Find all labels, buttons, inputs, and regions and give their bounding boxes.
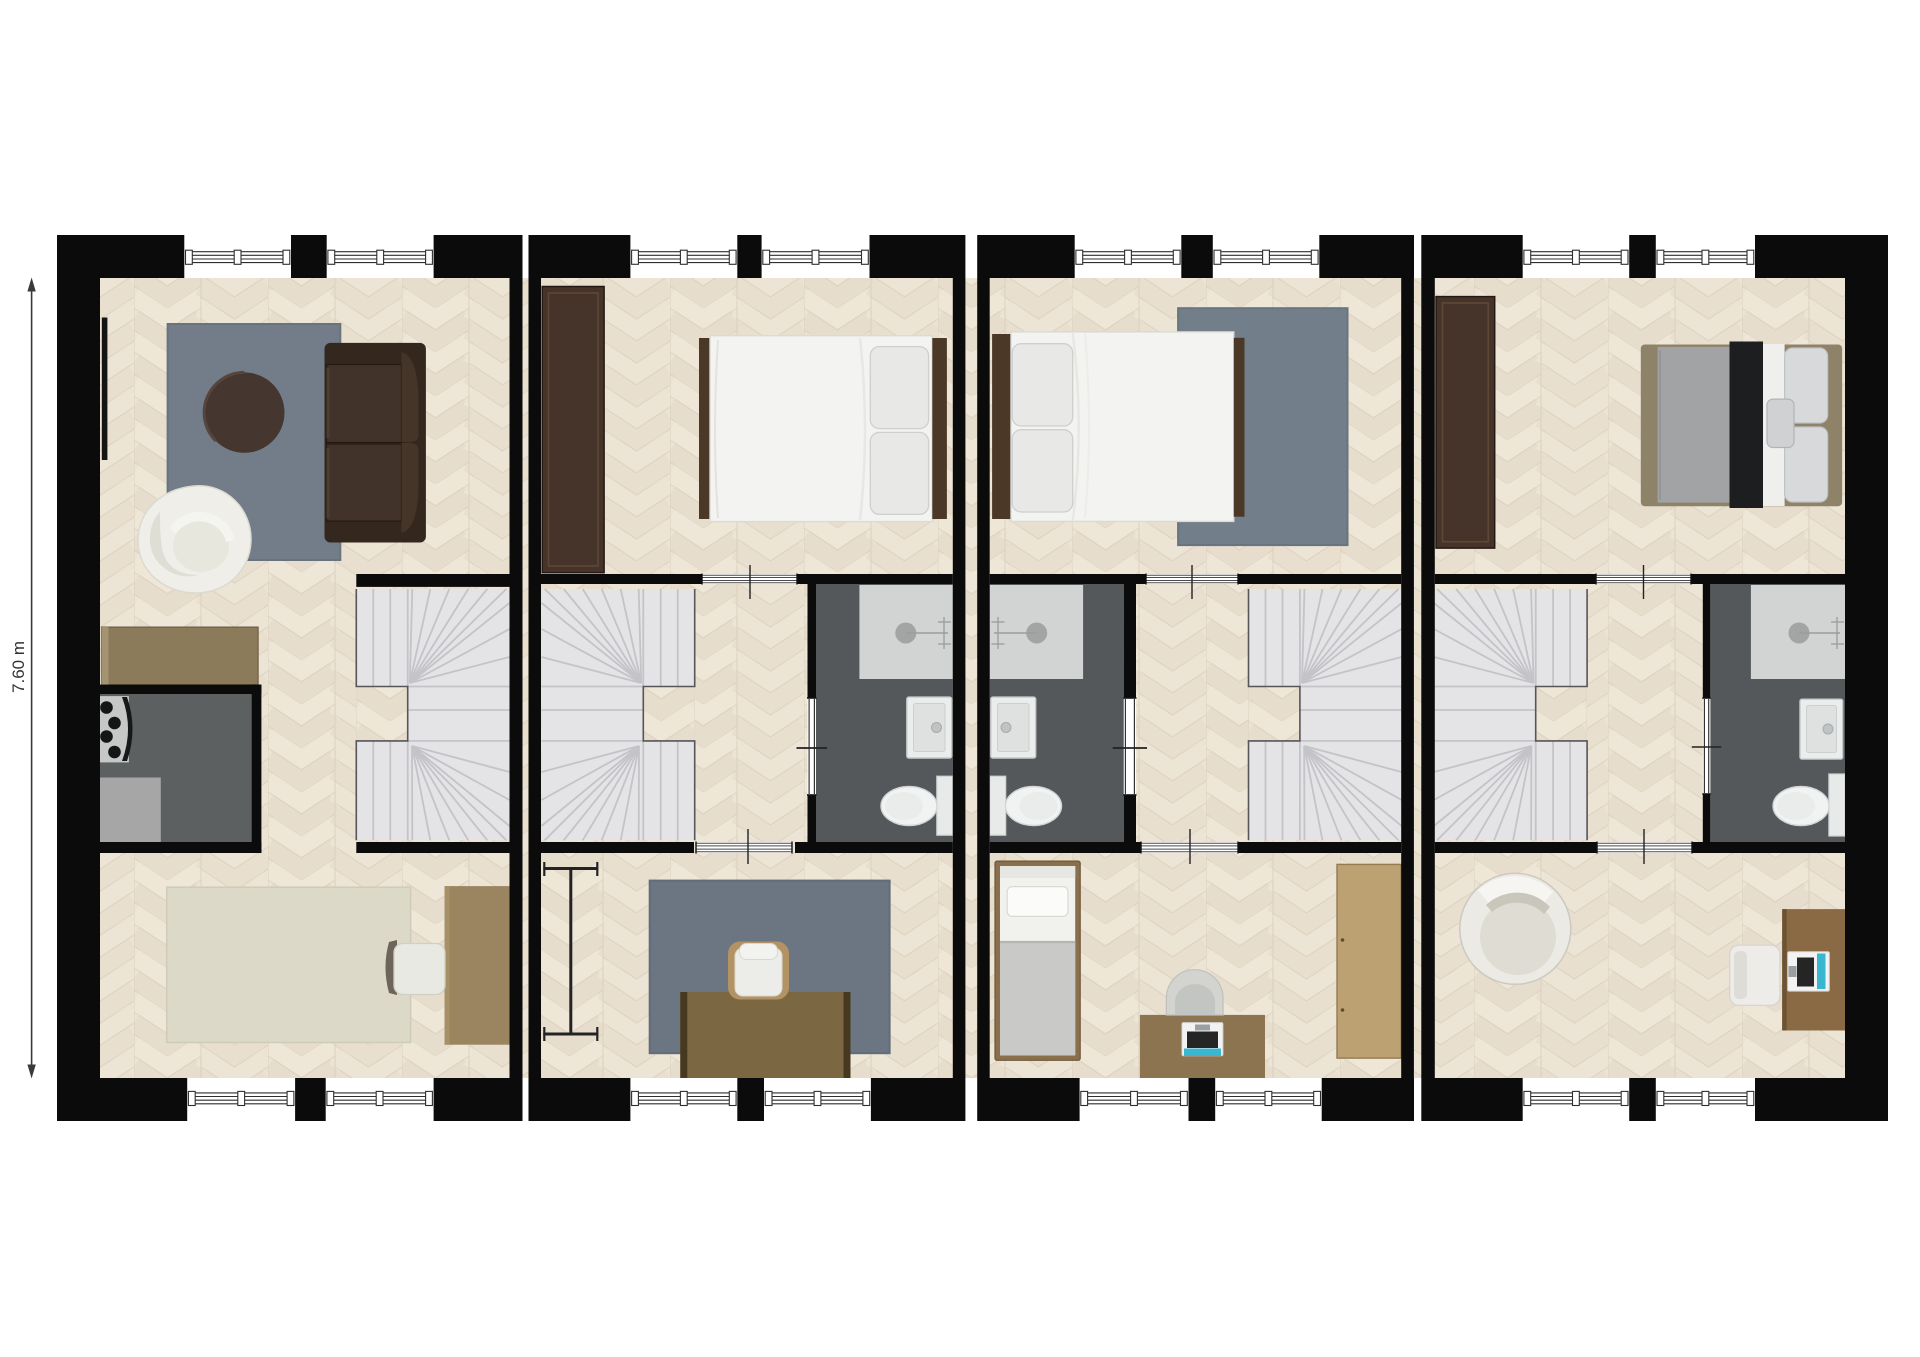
svg-text:7.60 m: 7.60 m [9, 641, 28, 693]
